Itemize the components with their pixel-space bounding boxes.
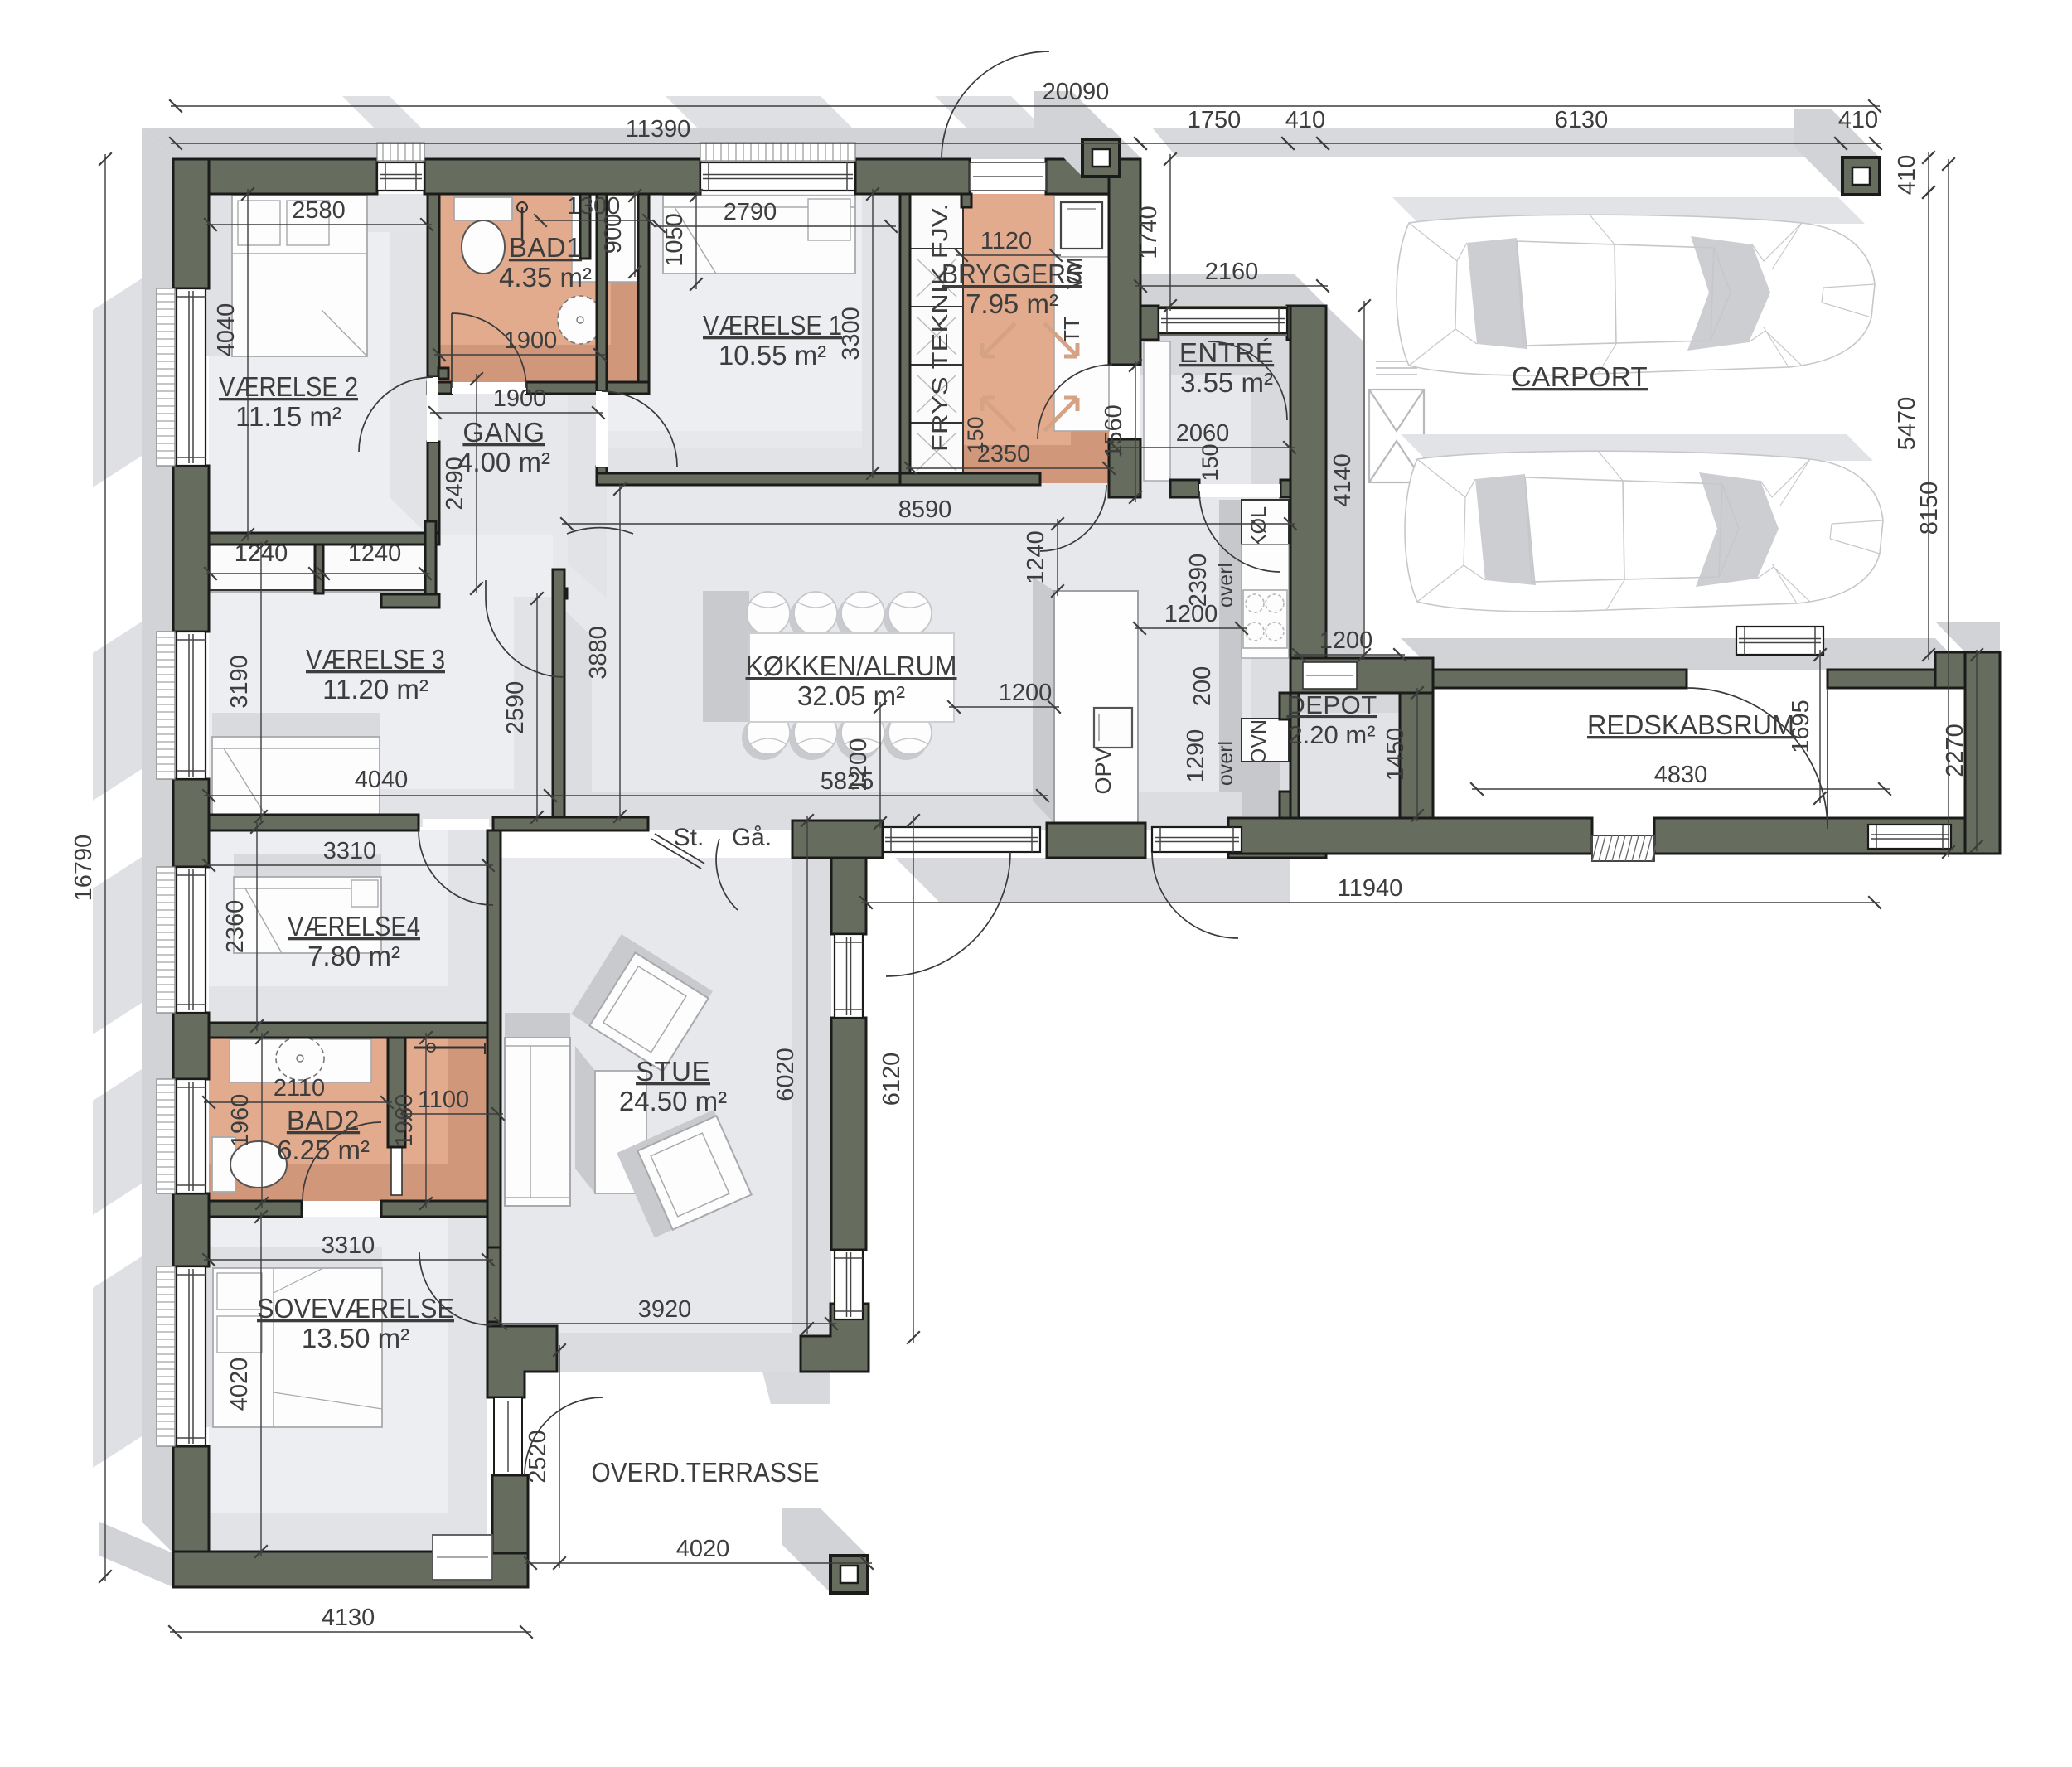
svg-text:2590: 2590 xyxy=(502,681,529,735)
svg-text:8590: 8590 xyxy=(898,496,952,523)
svg-text:11.15 m²: 11.15 m² xyxy=(235,401,341,432)
svg-text:11.20 m²: 11.20 m² xyxy=(322,674,428,704)
svg-text:1120: 1120 xyxy=(980,228,1032,254)
svg-text:VÆRELSE 3: VÆRELSE 3 xyxy=(306,644,445,675)
svg-text:1900: 1900 xyxy=(504,327,558,354)
svg-text:4.00 m²: 4.00 m² xyxy=(457,447,550,477)
svg-text:SOVEVÆRELSE: SOVEVÆRELSE xyxy=(257,1293,454,1324)
svg-text:2110: 2110 xyxy=(274,1075,325,1101)
svg-text:2060: 2060 xyxy=(1176,420,1230,447)
svg-text:4020: 4020 xyxy=(226,1358,253,1411)
svg-text:REDSKABSRUM: REDSKABSRUM xyxy=(1587,709,1794,740)
svg-text:1240: 1240 xyxy=(1023,530,1049,584)
svg-text:OPV: OPV xyxy=(1091,747,1116,794)
svg-text:2790: 2790 xyxy=(724,199,777,225)
svg-text:900: 900 xyxy=(600,214,627,254)
svg-text:6130: 6130 xyxy=(1555,107,1609,133)
svg-text:1450: 1450 xyxy=(1382,728,1409,782)
svg-text:2520: 2520 xyxy=(525,1430,551,1484)
svg-text:4130: 4130 xyxy=(322,1605,375,1631)
svg-text:ENTRÉ: ENTRÉ xyxy=(1179,337,1274,368)
svg-text:8150: 8150 xyxy=(1916,482,1943,535)
svg-text:24.50 m²: 24.50 m² xyxy=(619,1086,727,1116)
svg-text:410: 410 xyxy=(1285,107,1325,133)
svg-text:VÆRELSE 2: VÆRELSE 2 xyxy=(219,371,358,402)
svg-text:BRYGGERS: BRYGGERS xyxy=(942,259,1082,289)
svg-text:Gå.: Gå. xyxy=(732,824,772,851)
svg-text:2360: 2360 xyxy=(222,900,249,954)
svg-text:4830: 4830 xyxy=(1654,762,1708,788)
svg-text:1240: 1240 xyxy=(235,540,288,567)
svg-text:10.55 m²: 10.55 m² xyxy=(719,340,826,370)
svg-text:St.: St. xyxy=(674,824,704,851)
svg-text:410: 410 xyxy=(1894,155,1920,195)
svg-text:4020: 4020 xyxy=(676,1536,730,1562)
svg-text:4140: 4140 xyxy=(1329,453,1356,507)
svg-text:5470: 5470 xyxy=(1894,397,1920,451)
svg-text:13.50 m²: 13.50 m² xyxy=(302,1323,409,1353)
svg-text:1100: 1100 xyxy=(418,1087,469,1113)
svg-text:7.95 m²: 7.95 m² xyxy=(966,288,1058,319)
svg-text:BAD2: BAD2 xyxy=(287,1105,360,1135)
svg-text:1240: 1240 xyxy=(348,540,402,567)
svg-text:KØL: KØL xyxy=(1247,506,1271,548)
svg-text:DEPOT: DEPOT xyxy=(1286,690,1377,719)
svg-text:CARPORT: CARPORT xyxy=(1512,361,1648,392)
svg-text:1200: 1200 xyxy=(999,680,1053,706)
svg-text:2350: 2350 xyxy=(977,441,1031,467)
svg-text:3880: 3880 xyxy=(585,626,612,680)
svg-text:1050: 1050 xyxy=(661,213,688,267)
svg-text:1740: 1740 xyxy=(1135,206,1162,259)
svg-text:11390: 11390 xyxy=(626,116,691,143)
svg-text:200: 200 xyxy=(1189,666,1216,706)
svg-text:2270: 2270 xyxy=(1942,724,1968,777)
svg-text:3.55 m²: 3.55 m² xyxy=(1180,367,1273,398)
svg-text:1560: 1560 xyxy=(1101,404,1127,458)
svg-text:BAD1: BAD1 xyxy=(509,232,582,263)
svg-text:6020: 6020 xyxy=(772,1048,799,1101)
svg-text:20090: 20090 xyxy=(1043,79,1110,105)
svg-text:3190: 3190 xyxy=(226,655,253,709)
svg-text:2.20 m²: 2.20 m² xyxy=(1288,720,1375,749)
svg-text:2580: 2580 xyxy=(292,197,346,224)
svg-text:1750: 1750 xyxy=(1188,107,1242,133)
svg-text:KØKKEN/ALRUM: KØKKEN/ALRUM xyxy=(746,651,957,681)
svg-text:16790: 16790 xyxy=(70,835,97,902)
svg-text:OVN: OVN xyxy=(1247,719,1271,764)
svg-text:150: 150 xyxy=(1198,443,1222,481)
svg-text:6120: 6120 xyxy=(879,1053,905,1106)
svg-text:1200: 1200 xyxy=(1319,627,1373,654)
svg-text:FRYS TEKNIK FJV.: FRYS TEKNIK FJV. xyxy=(927,203,952,452)
svg-text:410: 410 xyxy=(1838,107,1878,133)
svg-text:STUE: STUE xyxy=(636,1056,710,1087)
svg-text:32.05 m²: 32.05 m² xyxy=(797,680,905,711)
svg-text:2160: 2160 xyxy=(1205,259,1259,285)
svg-text:GANG: GANG xyxy=(462,417,545,448)
svg-text:7.80 m²: 7.80 m² xyxy=(307,941,400,971)
svg-text:11940: 11940 xyxy=(1338,875,1403,902)
svg-text:4040: 4040 xyxy=(355,767,409,793)
svg-text:1290: 1290 xyxy=(1183,729,1209,783)
svg-text:4.35 m²: 4.35 m² xyxy=(499,262,592,293)
svg-text:6.25 m²: 6.25 m² xyxy=(277,1135,370,1165)
svg-text:5825: 5825 xyxy=(821,768,874,795)
svg-text:OVERD.TERRASSE: OVERD.TERRASSE xyxy=(592,1457,820,1488)
svg-text:2390: 2390 xyxy=(1185,554,1212,608)
svg-text:1900: 1900 xyxy=(493,385,547,412)
svg-text:VÆRELSE4: VÆRELSE4 xyxy=(288,911,420,942)
svg-text:VÆRELSE 1: VÆRELSE 1 xyxy=(703,310,842,341)
svg-text:1960: 1960 xyxy=(391,1094,418,1148)
svg-text:3310: 3310 xyxy=(323,838,377,864)
svg-text:1960: 1960 xyxy=(227,1094,254,1148)
svg-text:4040: 4040 xyxy=(213,303,240,357)
svg-text:3920: 3920 xyxy=(638,1296,692,1323)
svg-text:overl: overl xyxy=(1214,741,1237,786)
svg-text:3310: 3310 xyxy=(322,1232,375,1259)
